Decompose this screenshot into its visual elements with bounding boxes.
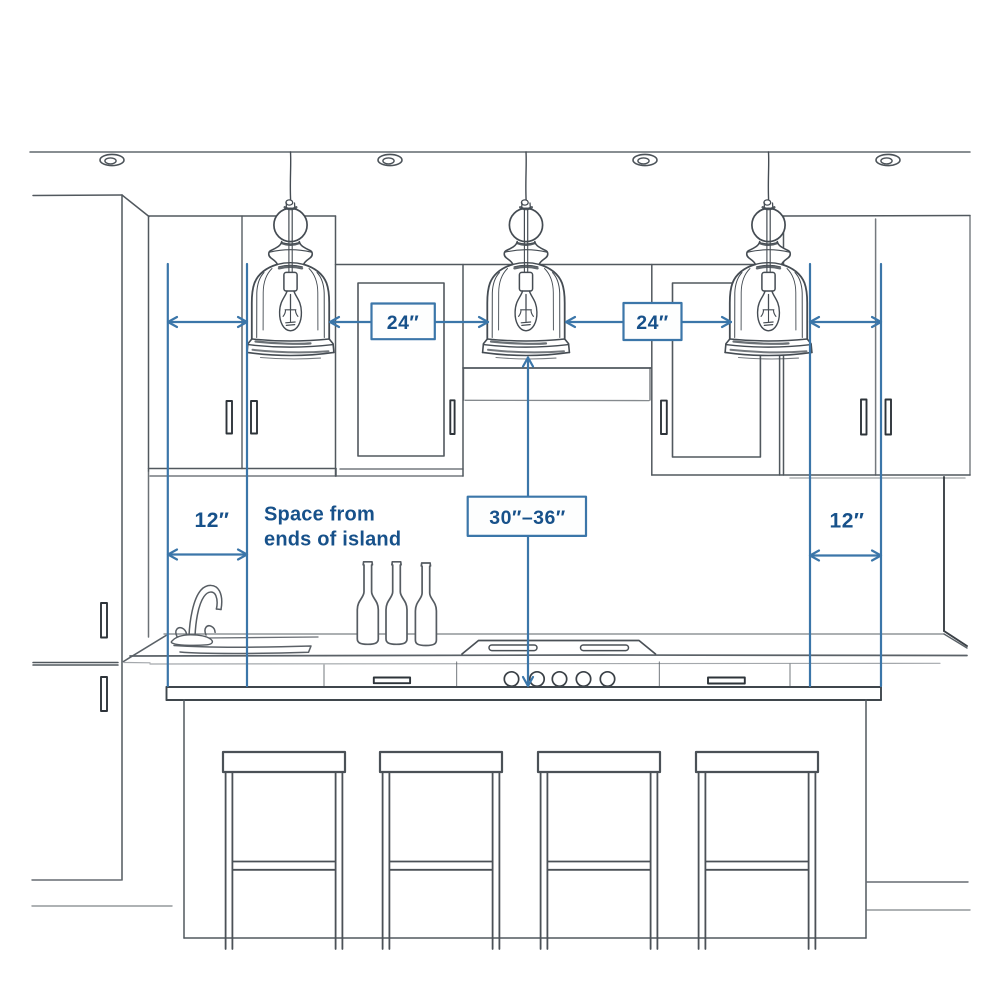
svg-text:30″–36″: 30″–36″ xyxy=(489,507,565,529)
svg-text:24″: 24″ xyxy=(387,312,420,334)
svg-text:24″: 24″ xyxy=(636,312,669,334)
svg-text:Space from: Space from xyxy=(264,504,375,526)
svg-text:12″: 12″ xyxy=(830,510,865,533)
svg-text:12″: 12″ xyxy=(195,509,230,532)
svg-text:ends of island: ends of island xyxy=(264,529,401,551)
